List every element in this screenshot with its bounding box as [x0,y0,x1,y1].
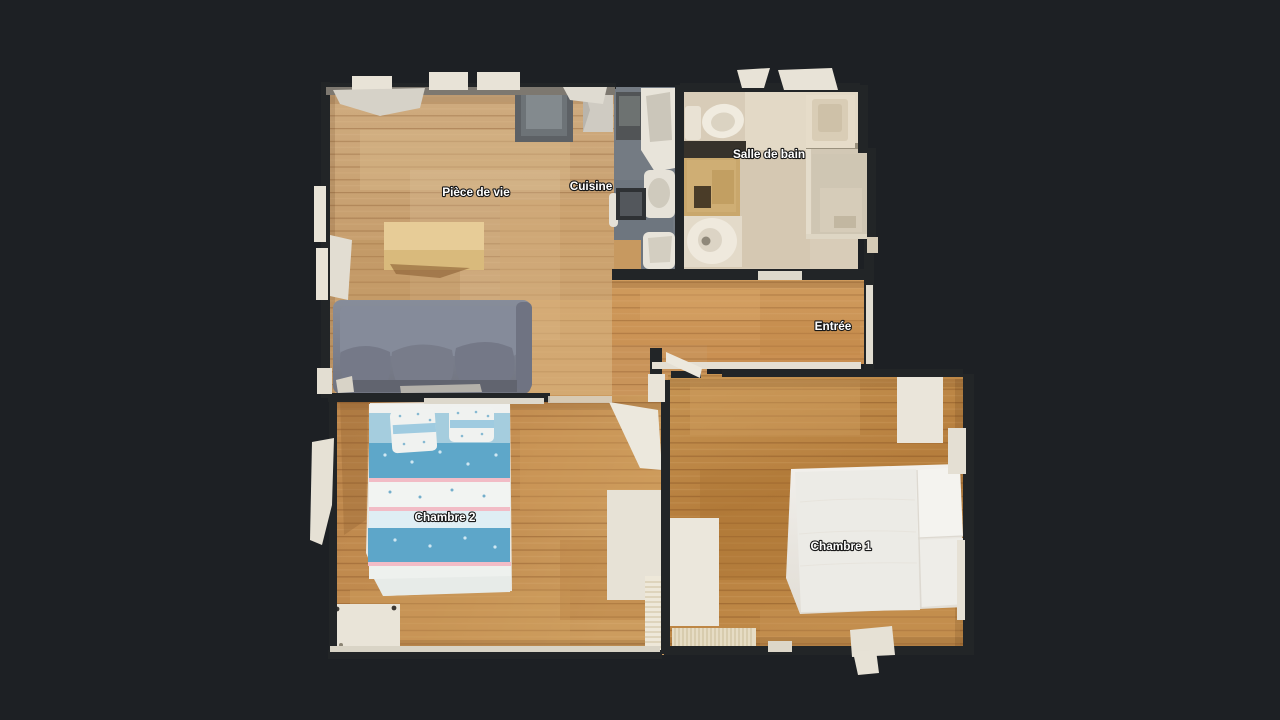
svg-text:Entrée: Entrée [815,319,852,333]
svg-text:Pièce de vie: Pièce de vie [442,185,510,199]
svg-text:Salle de bain: Salle de bain [733,147,805,161]
svg-text:Chambre 2: Chambre 2 [415,510,476,524]
svg-text:Chambre 1: Chambre 1 [811,539,872,553]
svg-text:Cuisine: Cuisine [570,179,613,193]
